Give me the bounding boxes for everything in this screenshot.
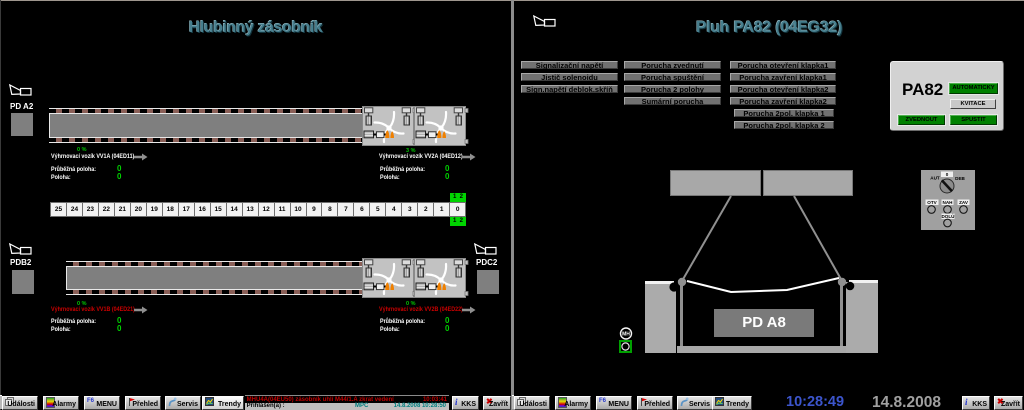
svg-text:DEB: DEB xyxy=(955,176,965,181)
svg-text:ZAV: ZAV xyxy=(959,200,969,205)
svg-text:DOLŮ: DOLŮ xyxy=(941,212,955,219)
svg-text:AUT: AUT xyxy=(930,176,940,181)
svg-text:OTV: OTV xyxy=(927,200,937,205)
svg-text:NAH: NAH xyxy=(943,200,954,205)
svg-text:MH: MH xyxy=(622,331,630,337)
svg-text:0: 0 xyxy=(946,172,949,177)
